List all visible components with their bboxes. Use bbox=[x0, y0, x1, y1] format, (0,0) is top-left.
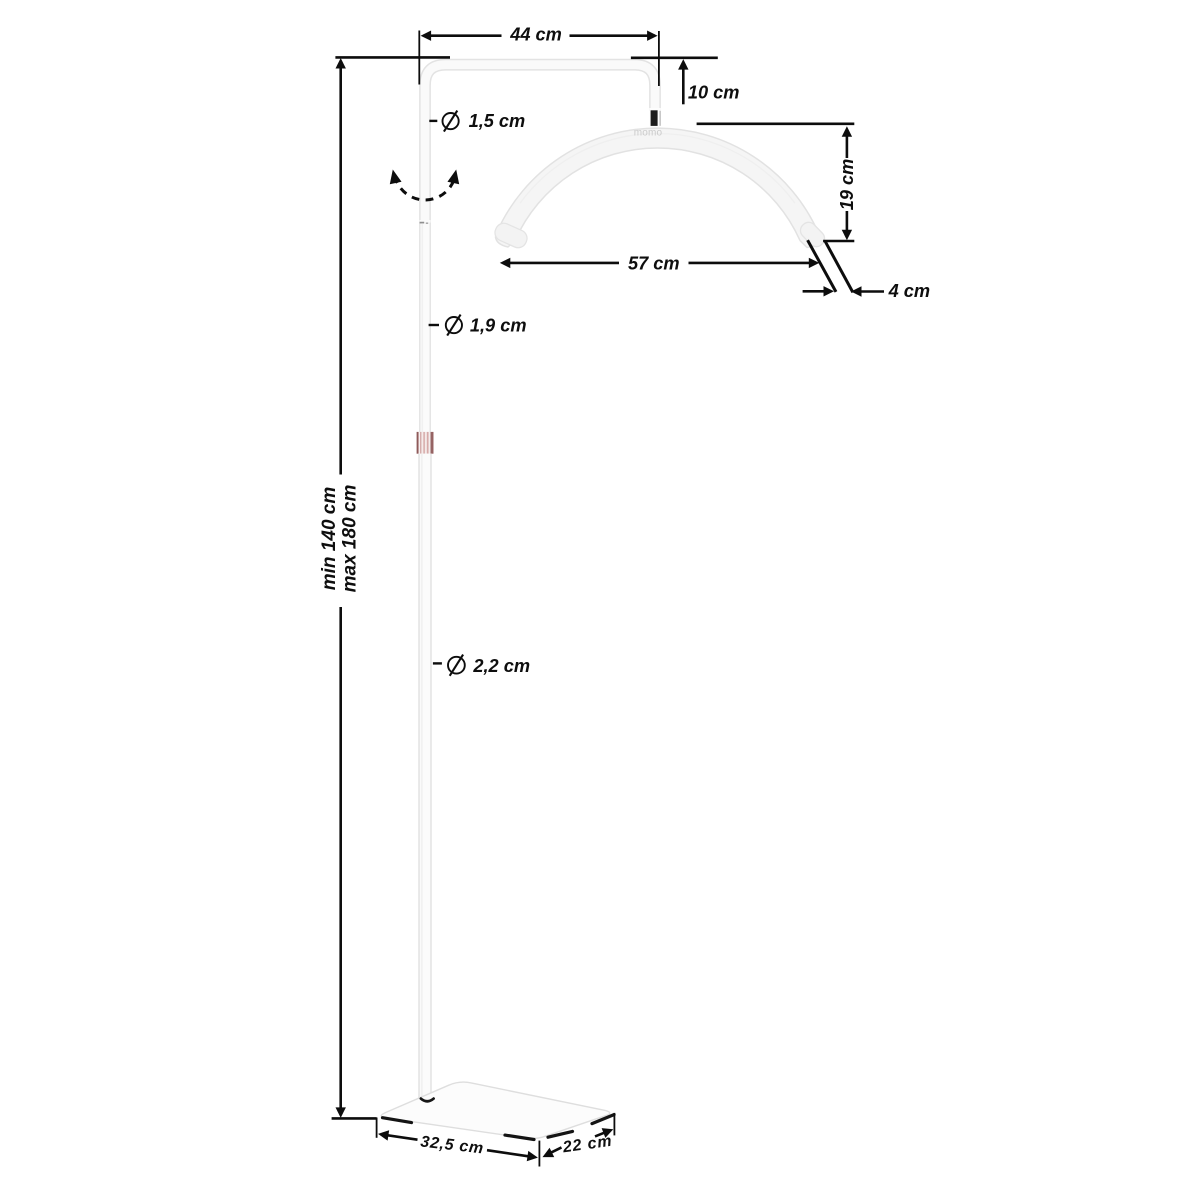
svg-text:19 cm: 19 cm bbox=[837, 159, 857, 211]
svg-text:4 cm: 4 cm bbox=[888, 281, 930, 301]
svg-text:1,9 cm: 1,9 cm bbox=[470, 316, 527, 336]
svg-text:1,5 cm: 1,5 cm bbox=[469, 111, 526, 131]
svg-text:min 140 cm: min 140 cm bbox=[319, 487, 340, 591]
svg-text:57 cm: 57 cm bbox=[628, 253, 680, 273]
svg-text:2,2 cm: 2,2 cm bbox=[472, 656, 530, 676]
svg-text:10 cm: 10 cm bbox=[688, 82, 740, 102]
svg-text:momo: momo bbox=[634, 128, 663, 139]
svg-text:44 cm: 44 cm bbox=[509, 24, 562, 44]
svg-text:max 180 cm: max 180 cm bbox=[340, 485, 361, 593]
